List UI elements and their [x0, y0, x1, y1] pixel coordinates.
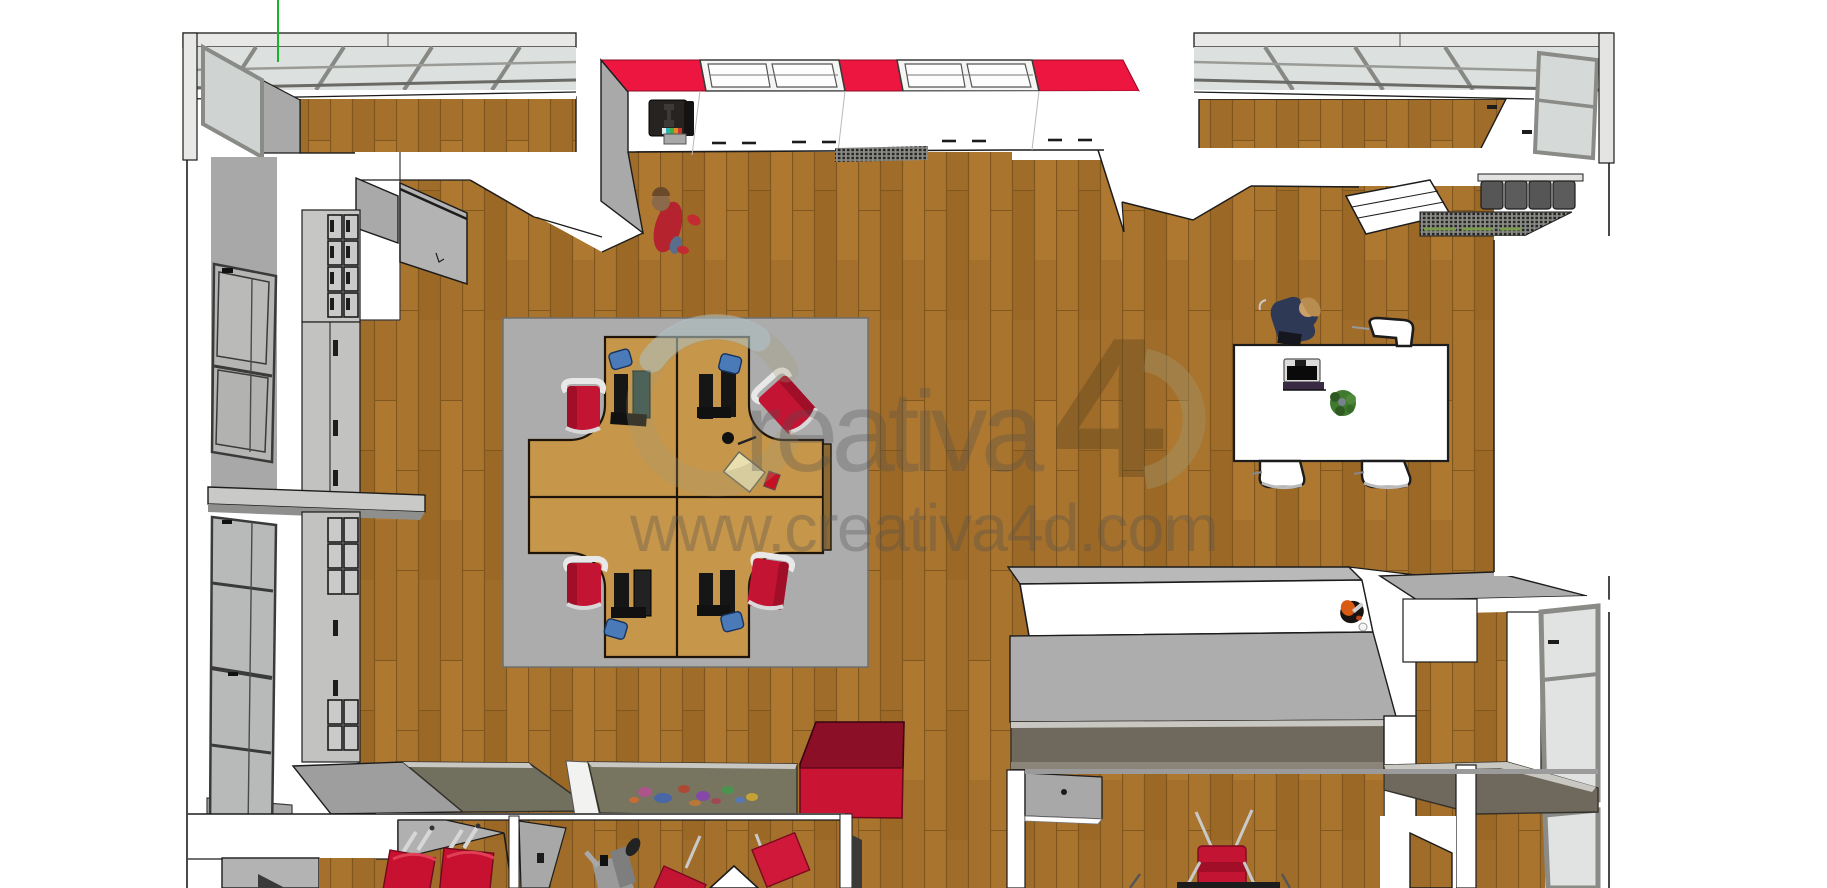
svg-text:www.creativa4d.com: www.creativa4d.com — [629, 491, 1217, 566]
svg-text:reativa: reativa — [744, 369, 1045, 496]
svg-text:4: 4 — [1053, 297, 1164, 520]
